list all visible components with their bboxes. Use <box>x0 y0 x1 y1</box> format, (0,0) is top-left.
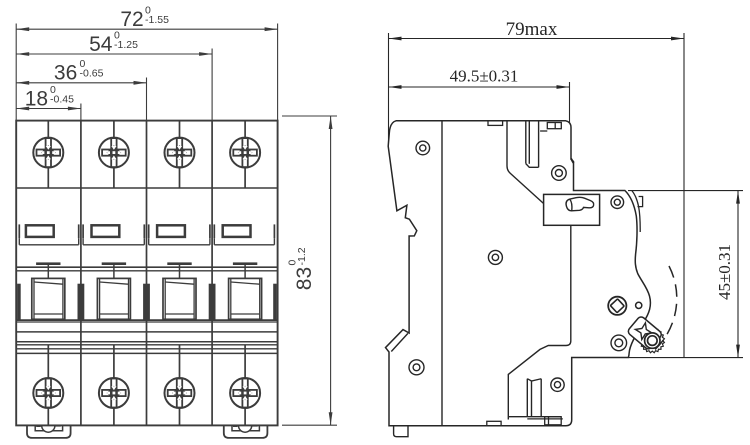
svg-text:-0.45: -0.45 <box>50 93 74 105</box>
svg-text:79max: 79max <box>506 19 558 40</box>
svg-text:18: 18 <box>25 87 48 110</box>
svg-text:83: 83 <box>293 267 316 290</box>
svg-text:72: 72 <box>120 8 143 31</box>
svg-text:-1.55: -1.55 <box>145 14 169 26</box>
svg-text:-1.2: -1.2 <box>296 247 308 265</box>
svg-text:-0.65: -0.65 <box>80 68 104 80</box>
svg-text:45±0.31: 45±0.31 <box>715 244 734 300</box>
svg-text:36: 36 <box>54 62 77 85</box>
svg-text:-1.25: -1.25 <box>114 39 138 51</box>
svg-text:54: 54 <box>89 33 113 56</box>
svg-text:49.5±0.31: 49.5±0.31 <box>450 67 519 86</box>
